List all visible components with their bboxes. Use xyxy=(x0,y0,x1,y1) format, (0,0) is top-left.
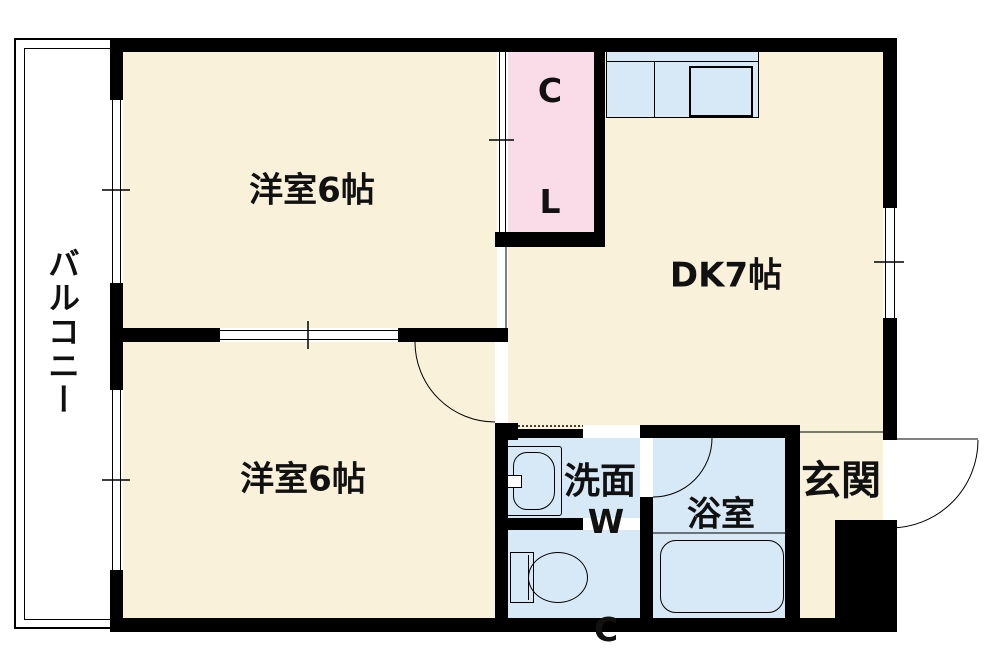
wc-label: W C xyxy=(583,432,629,665)
wall-bottom xyxy=(110,618,897,632)
closet-label-line1: C xyxy=(527,72,573,109)
counter-divider-line xyxy=(654,61,655,117)
counter-edge-line xyxy=(607,61,758,62)
wall-washroom-bottom xyxy=(508,518,583,530)
window-between-rooms xyxy=(220,328,398,342)
wc-label-line1: W xyxy=(583,504,629,540)
closet-sliding-door xyxy=(497,52,508,232)
wc-label-line2: C xyxy=(583,612,629,648)
wall-bathroom-top xyxy=(640,425,800,438)
entrance-label: 玄関 xyxy=(801,448,881,506)
passage-strip xyxy=(497,247,508,328)
window-dk-right xyxy=(883,208,897,318)
closet-label-line2: L xyxy=(527,183,573,220)
entrance-door-opening xyxy=(883,440,897,520)
wall-bathroom-right xyxy=(785,425,800,618)
entrance-door-arc xyxy=(890,440,978,528)
closet-label: C L xyxy=(527,0,573,294)
bathtub-fixture xyxy=(660,540,784,613)
balcony-label: バルコニー xyxy=(39,247,85,417)
kitchen-sink xyxy=(689,66,753,117)
window-bedroom-top-left xyxy=(110,100,123,283)
bedroom-bottom-door-gap xyxy=(495,342,508,423)
window-bedroom-bottom-left xyxy=(110,390,123,570)
floor-plan: 洋室6帖 洋室6帖 DK7帖 C L バルコニー 洗面 W C 浴室 玄関 xyxy=(0,0,999,665)
wall-between-rooms-left xyxy=(110,328,220,342)
wall-closet-right xyxy=(594,45,605,247)
dining-kitchen-label: DK7帖 xyxy=(670,248,782,297)
washbasin-handle xyxy=(507,475,522,488)
kitchen-counter xyxy=(606,51,759,118)
toilet-tank xyxy=(510,552,534,603)
wall-between-rooms-right xyxy=(398,328,508,342)
bathroom-label: 浴室 xyxy=(687,487,755,536)
washbasin-fixture xyxy=(506,446,562,516)
bedroom-bottom-label: 洋室6帖 xyxy=(240,452,366,501)
wall-left-upper xyxy=(110,38,123,100)
bedroom-top-label: 洋室6帖 xyxy=(249,163,375,212)
bathroom-door-gap xyxy=(640,438,653,497)
wall-entrance-block xyxy=(835,520,897,632)
wall-right-upper xyxy=(883,38,897,208)
wall-wc-bathroom xyxy=(640,497,653,618)
wall-left-lower xyxy=(110,570,123,632)
toilet-bowl xyxy=(528,552,588,603)
wall-top xyxy=(110,38,897,52)
wall-right-middle xyxy=(883,318,897,440)
wall-washroom-top xyxy=(518,429,583,438)
wall-washroom-left xyxy=(495,438,508,618)
